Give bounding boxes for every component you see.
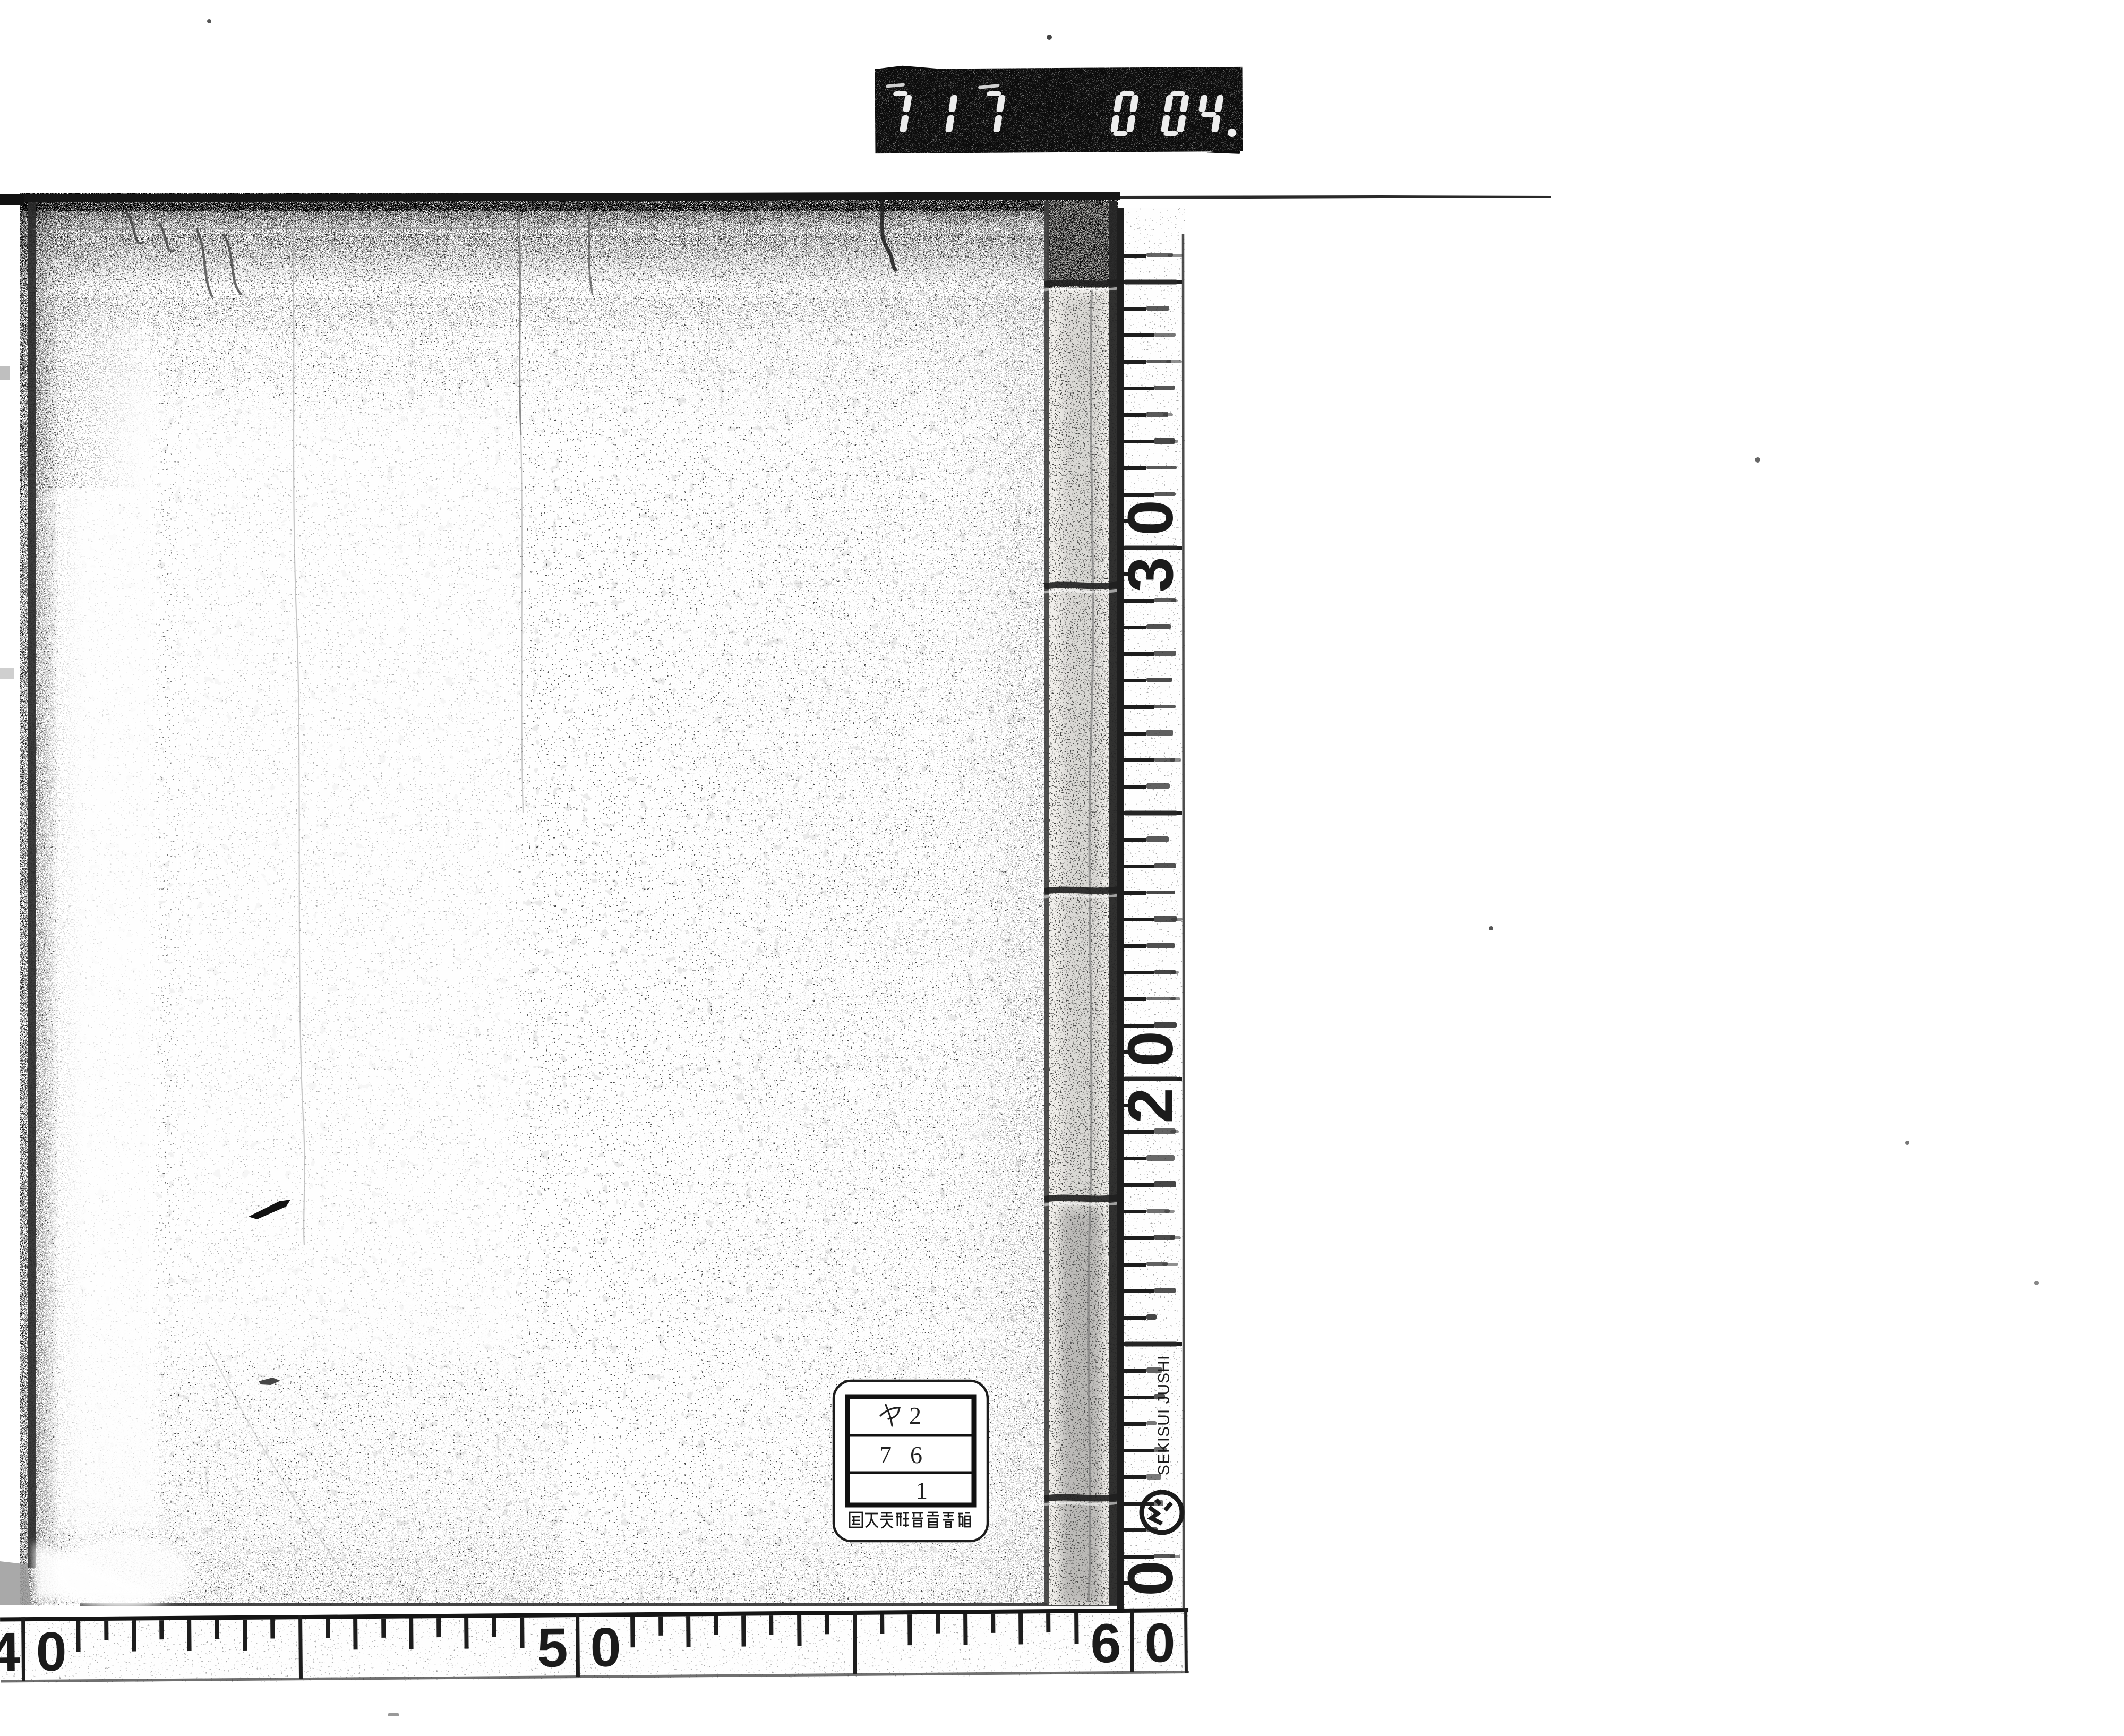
svg-text:6: 6	[910, 1441, 922, 1468]
svg-text:0: 0	[36, 1621, 67, 1683]
svg-text:4: 4	[0, 1621, 20, 1683]
svg-text:0: 0	[590, 1617, 621, 1678]
svg-text:0: 0	[1114, 1031, 1186, 1066]
svg-text:0: 0	[1144, 1612, 1176, 1674]
svg-text:5: 5	[537, 1617, 568, 1679]
svg-text:7: 7	[879, 1441, 892, 1468]
svg-text:2: 2	[909, 1402, 921, 1429]
svg-text:0: 0	[1114, 1560, 1186, 1596]
svg-text:SEKISUI JUSHI: SEKISUI JUSHI	[1155, 1355, 1173, 1475]
svg-text:1: 1	[915, 1477, 928, 1504]
svg-text:0: 0	[1114, 500, 1186, 535]
svg-text:6: 6	[1090, 1613, 1121, 1674]
svg-text:3: 3	[1114, 557, 1186, 592]
svg-text:2: 2	[1114, 1088, 1186, 1123]
